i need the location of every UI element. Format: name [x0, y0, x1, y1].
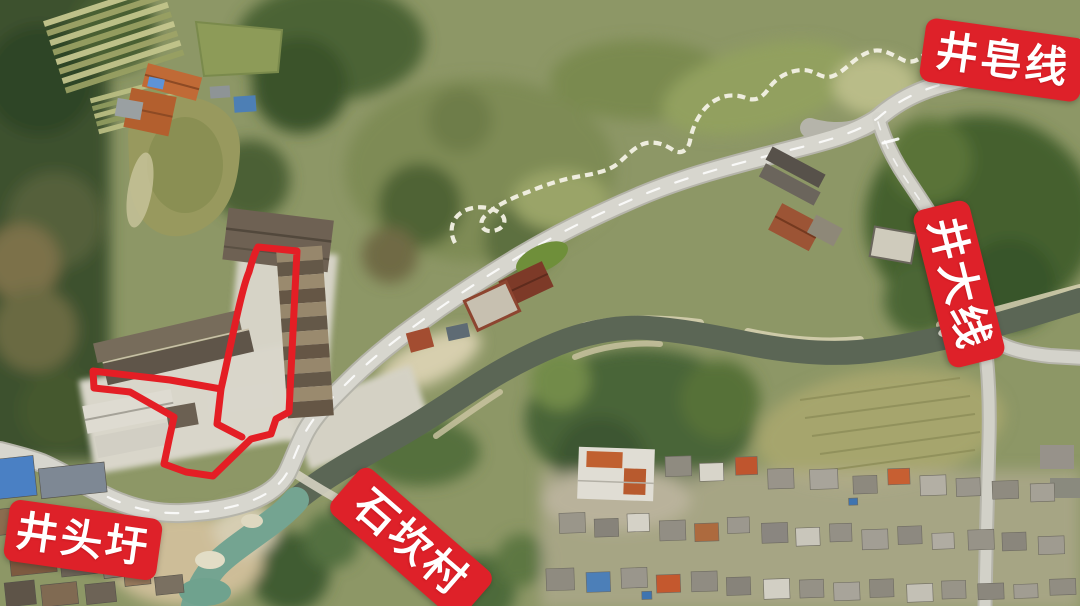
south-road: [983, 332, 989, 606]
orange-roof-house: [577, 447, 655, 502]
aerial-photo: [0, 0, 1080, 606]
aerial-map: 井皂线 井大线 石坎村 井头圩: [0, 0, 1080, 606]
small-pond: [196, 22, 282, 76]
